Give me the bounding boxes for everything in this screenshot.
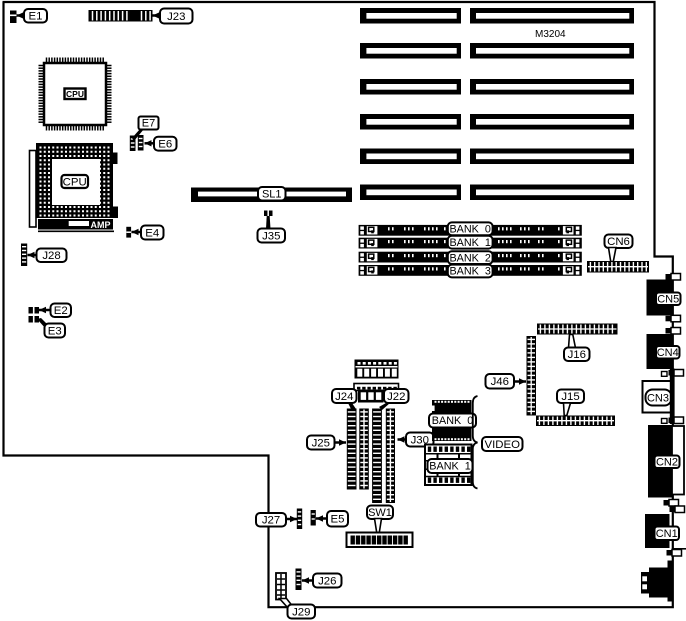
svg-text:J26: J26 xyxy=(318,575,336,587)
svg-text:E3: E3 xyxy=(48,325,62,337)
svg-text:BANK 0: BANK 0 xyxy=(432,415,473,427)
svg-text:CN5: CN5 xyxy=(657,293,679,305)
svg-text:SL1: SL1 xyxy=(262,188,282,200)
svg-text:BANK 3: BANK 3 xyxy=(449,266,490,278)
svg-text:CN3: CN3 xyxy=(647,393,669,405)
svg-text:BANK 2: BANK 2 xyxy=(449,252,490,264)
svg-text:BANK 0: BANK 0 xyxy=(449,223,490,235)
svg-text:CPU: CPU xyxy=(66,89,84,99)
svg-text:J16: J16 xyxy=(568,349,586,361)
svg-text:J35: J35 xyxy=(262,230,280,242)
svg-text:J24: J24 xyxy=(335,391,353,403)
svg-text:E6: E6 xyxy=(158,139,172,151)
svg-text:CN2: CN2 xyxy=(656,456,678,468)
svg-text:BANK 1: BANK 1 xyxy=(449,237,490,249)
svg-text:AMP: AMP xyxy=(91,220,111,230)
svg-text:VIDEO: VIDEO xyxy=(485,439,521,451)
svg-text:E1: E1 xyxy=(29,11,43,23)
svg-text:CN6: CN6 xyxy=(607,236,630,248)
svg-text:SW1: SW1 xyxy=(368,507,392,519)
svg-text:E5: E5 xyxy=(331,514,345,526)
svg-text:E7: E7 xyxy=(142,118,155,130)
svg-text:J28: J28 xyxy=(42,250,60,262)
svg-text:J25: J25 xyxy=(312,437,330,449)
svg-text:M3204: M3204 xyxy=(535,29,566,40)
svg-text:J27: J27 xyxy=(262,515,280,527)
svg-text:J46: J46 xyxy=(491,376,509,388)
svg-text:E4: E4 xyxy=(145,227,159,239)
svg-text:J23: J23 xyxy=(167,11,185,23)
svg-text:CN4: CN4 xyxy=(657,347,679,359)
svg-text:J15: J15 xyxy=(561,391,579,403)
svg-text:J22: J22 xyxy=(387,391,405,403)
svg-text:BANK 1: BANK 1 xyxy=(429,461,470,473)
svg-text:E2: E2 xyxy=(54,305,68,317)
svg-text:CN1: CN1 xyxy=(656,528,678,540)
svg-text:CPU: CPU xyxy=(63,177,87,189)
svg-text:J29: J29 xyxy=(292,606,310,618)
